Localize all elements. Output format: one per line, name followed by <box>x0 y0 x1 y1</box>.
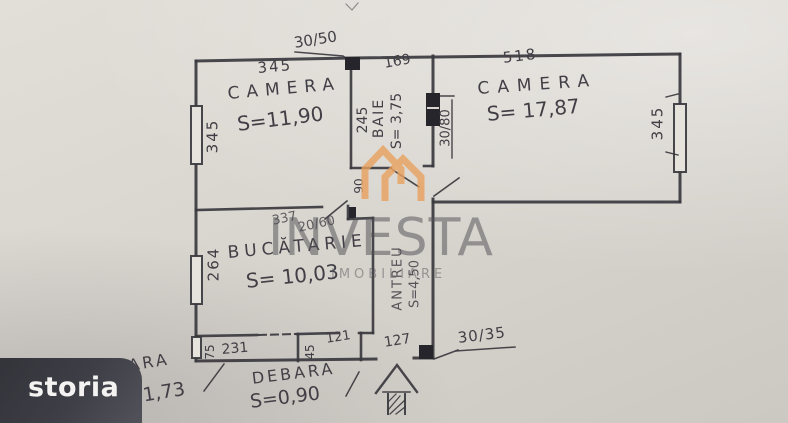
storia-logo: storia <box>28 374 119 401</box>
room-baie-name: BAIE <box>372 98 386 138</box>
dim-bucatarie-height: 264 <box>207 247 222 282</box>
dim-hol-width: 127 <box>383 332 412 350</box>
dim-baie-height: 245 <box>356 107 370 134</box>
dim-debara-depth: 45 <box>304 344 316 359</box>
dim-camera1-height: 345 <box>206 119 221 154</box>
room-baie-area: S= 3,75 <box>390 93 404 149</box>
floorplan-photo: CAMERA S=11,90 CAMERA S= 17,87 BAIE S= 3… <box>0 0 788 423</box>
watermark-house-icon <box>357 143 427 201</box>
dim-camara-width: 231 <box>221 341 249 357</box>
watermark-tagline: IMOBILIARE <box>331 268 446 281</box>
dim-debara-width: 121 <box>325 329 352 346</box>
dim-camara-depth: 75 <box>204 344 216 359</box>
dim-camera1-width: 345 <box>257 58 293 76</box>
dim-camera2-width: 518 <box>502 47 538 66</box>
dim-camera2-height: 345 <box>651 106 666 141</box>
vent-baie-label: 30/80 <box>440 109 453 146</box>
watermark-brand: INVESTA <box>268 212 494 264</box>
